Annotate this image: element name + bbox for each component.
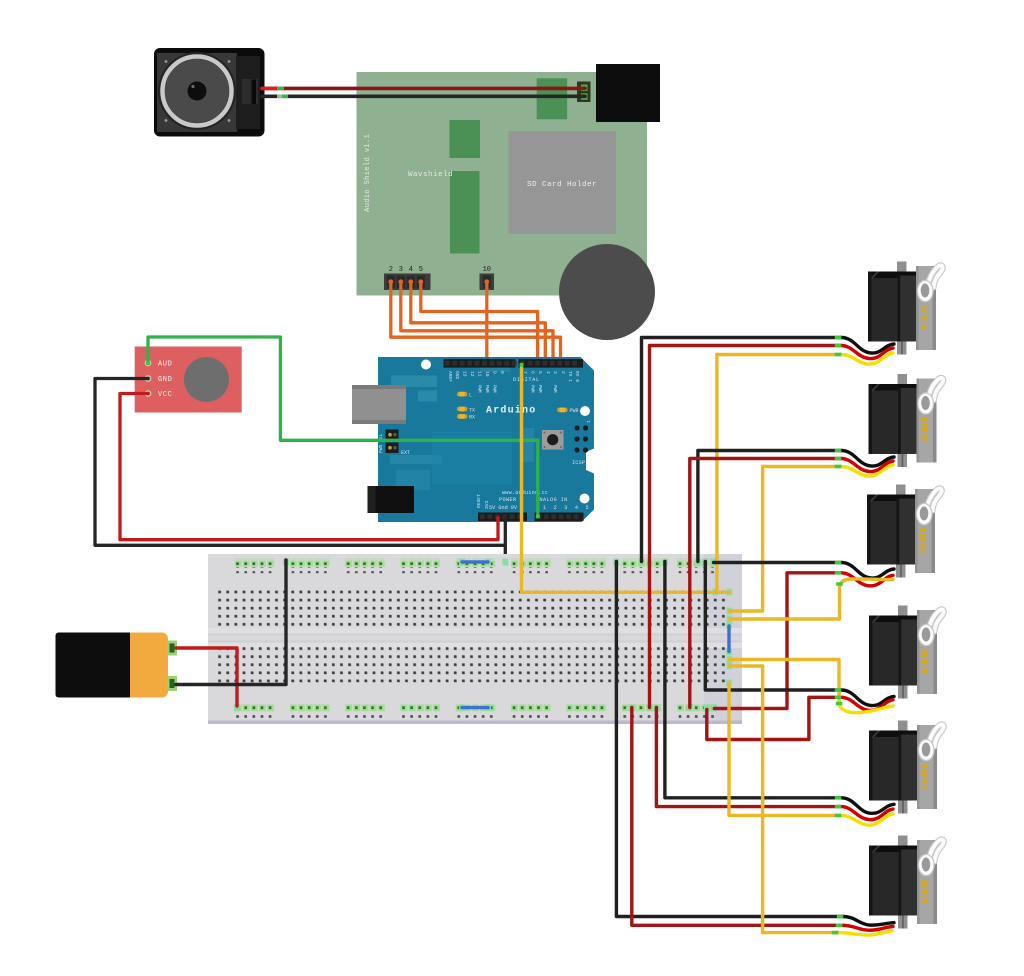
svg-text:5: 5 (419, 266, 423, 274)
svg-text:3: 3 (399, 266, 403, 274)
svg-text:PWM: PWM (484, 385, 488, 393)
svg-text:ICSP: ICSP (572, 460, 585, 466)
svg-text:AUD: AUD (158, 361, 172, 369)
svg-text:PWM: PWM (530, 385, 534, 393)
svg-text:Arduino: Arduino (486, 405, 536, 417)
svg-text:SERVO: SERVO (919, 764, 928, 790)
svg-text:L: L (469, 392, 472, 398)
svg-text:12: 12 (469, 371, 475, 377)
svg-text:4: 4 (409, 266, 413, 274)
svg-text:AREF: AREF (447, 371, 453, 382)
svg-text:3: 3 (552, 371, 558, 374)
svg-text:4: 4 (545, 371, 551, 374)
svg-text:SERVO: SERVO (918, 305, 927, 331)
svg-text:SD Card Holder: SD Card Holder (527, 181, 597, 189)
svg-text:RX 0: RX 0 (574, 371, 580, 382)
svg-text:www.arduino.cc: www.arduino.cc (502, 490, 548, 496)
svg-text:SERVO: SERVO (919, 879, 928, 905)
svg-text:VCC: VCC (158, 391, 172, 399)
svg-text:3V3: 3V3 (484, 500, 490, 509)
svg-text:2: 2 (560, 371, 566, 374)
svg-text:13: 13 (462, 371, 468, 377)
svg-text:EXT: EXT (401, 450, 410, 456)
svg-text:Audio Shield v1.1: Audio Shield v1.1 (364, 134, 372, 212)
svg-text:PWM: PWM (491, 385, 495, 393)
svg-text:SERVO: SERVO (919, 649, 928, 675)
svg-text:1 2 3 4 5: 1 2 3 4 5 (543, 505, 591, 511)
svg-text:PWR SEL: PWR SEL (378, 433, 384, 453)
svg-text:SERVO: SERVO (919, 417, 928, 443)
svg-text:DIGITAL: DIGITAL (513, 377, 540, 383)
svg-text:5: 5 (537, 371, 543, 374)
svg-text:GND: GND (454, 371, 460, 380)
svg-text:RX: RX (469, 415, 475, 421)
svg-text:SERVO: SERVO (917, 528, 926, 554)
svg-text:8: 8 (499, 371, 505, 374)
svg-text:6: 6 (530, 371, 536, 374)
svg-text:RESET: RESET (476, 494, 482, 508)
svg-text:PWM: PWM (537, 385, 541, 393)
svg-text:POWER: POWER (499, 497, 517, 503)
svg-text:TX 1: TX 1 (567, 371, 573, 382)
svg-text:10: 10 (484, 371, 490, 377)
svg-text:Wavshield: Wavshield (408, 171, 453, 179)
svg-text:PWR: PWR (570, 408, 579, 414)
svg-text:GND: GND (158, 376, 172, 384)
svg-text:10: 10 (483, 266, 491, 274)
svg-text:5V Gnd 9V: 5V Gnd 9V (489, 505, 518, 511)
svg-text:ANALOG IN: ANALOG IN (536, 497, 568, 503)
svg-text:TX: TX (469, 407, 475, 413)
svg-text:PWM: PWM (552, 385, 556, 393)
svg-text:11: 11 (477, 371, 483, 377)
svg-text:1: 1 (586, 420, 592, 423)
svg-text:9: 9 (491, 371, 497, 374)
svg-text:PWM: PWM (477, 385, 481, 393)
svg-text:2: 2 (389, 266, 393, 274)
